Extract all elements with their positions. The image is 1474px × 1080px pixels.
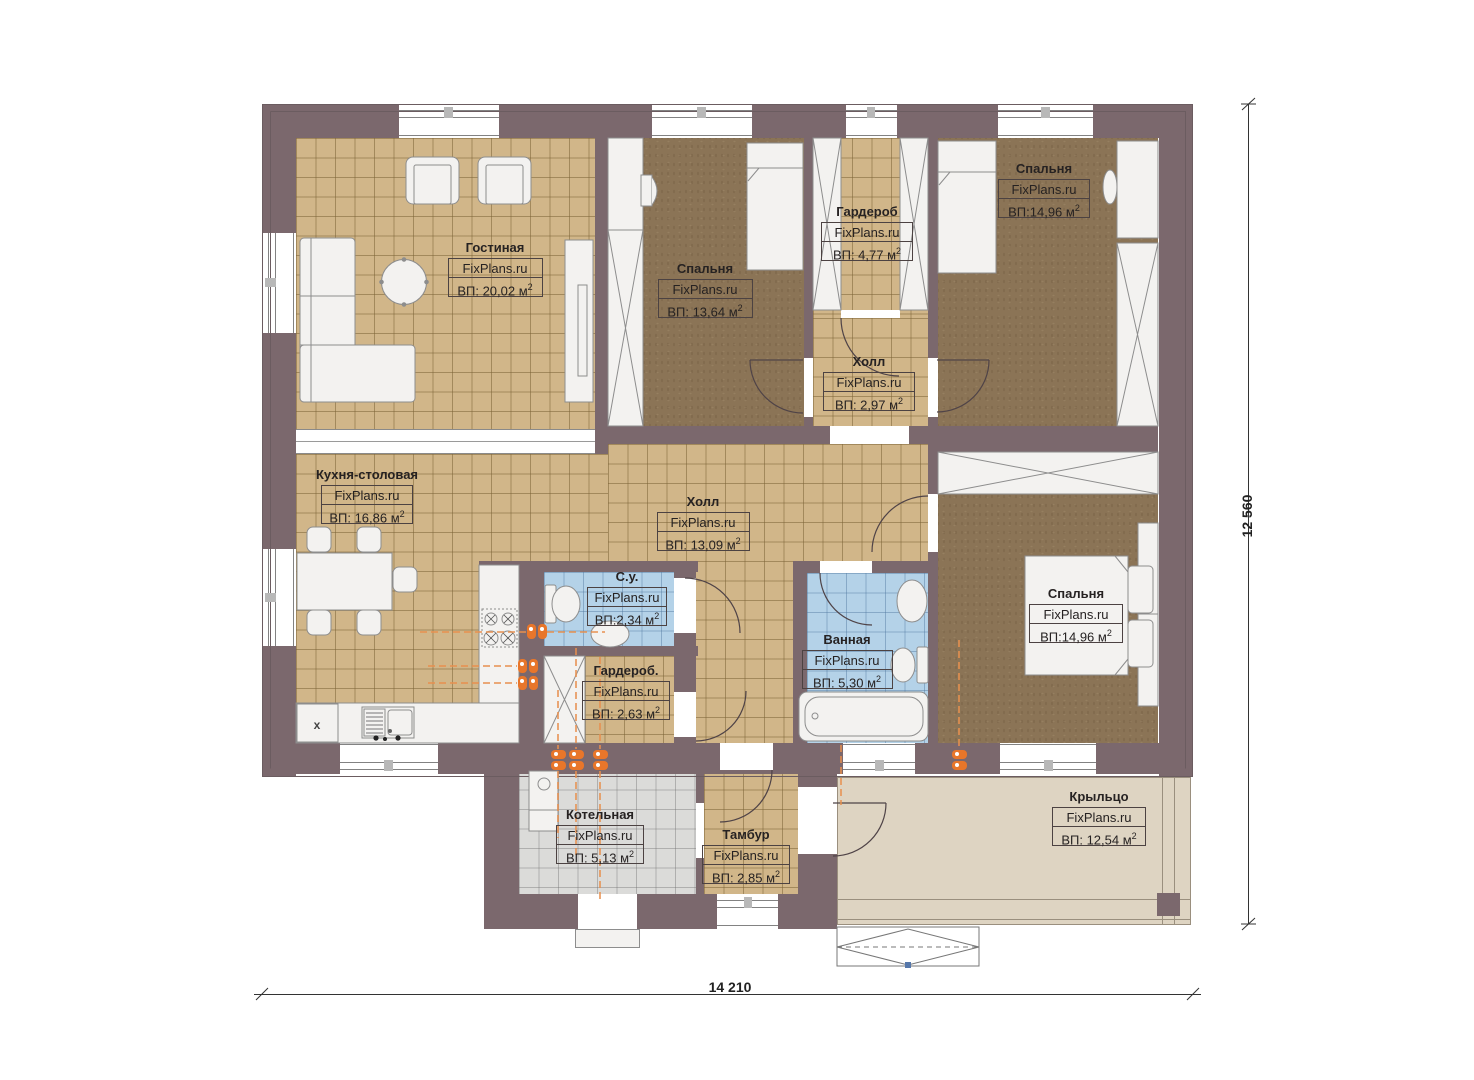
svg-text:x: x — [314, 718, 321, 732]
